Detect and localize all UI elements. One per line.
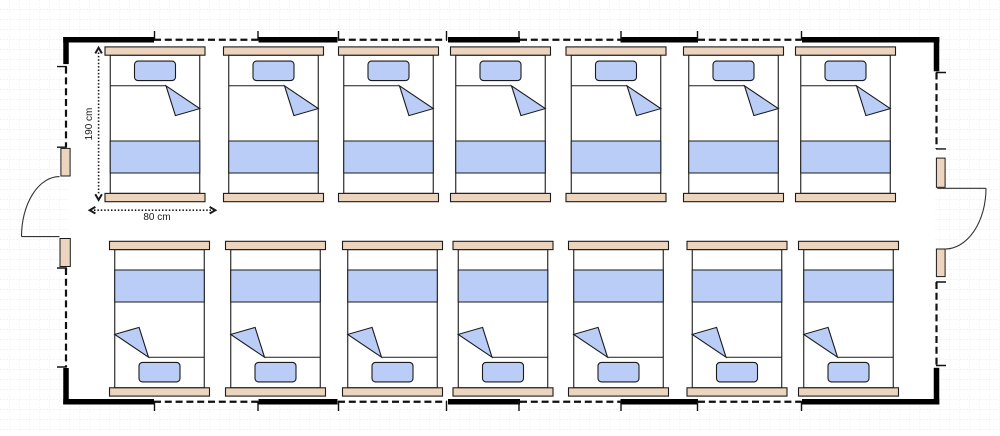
- svg-text:80 cm: 80 cm: [143, 212, 170, 223]
- svg-text:190 cm: 190 cm: [84, 108, 95, 141]
